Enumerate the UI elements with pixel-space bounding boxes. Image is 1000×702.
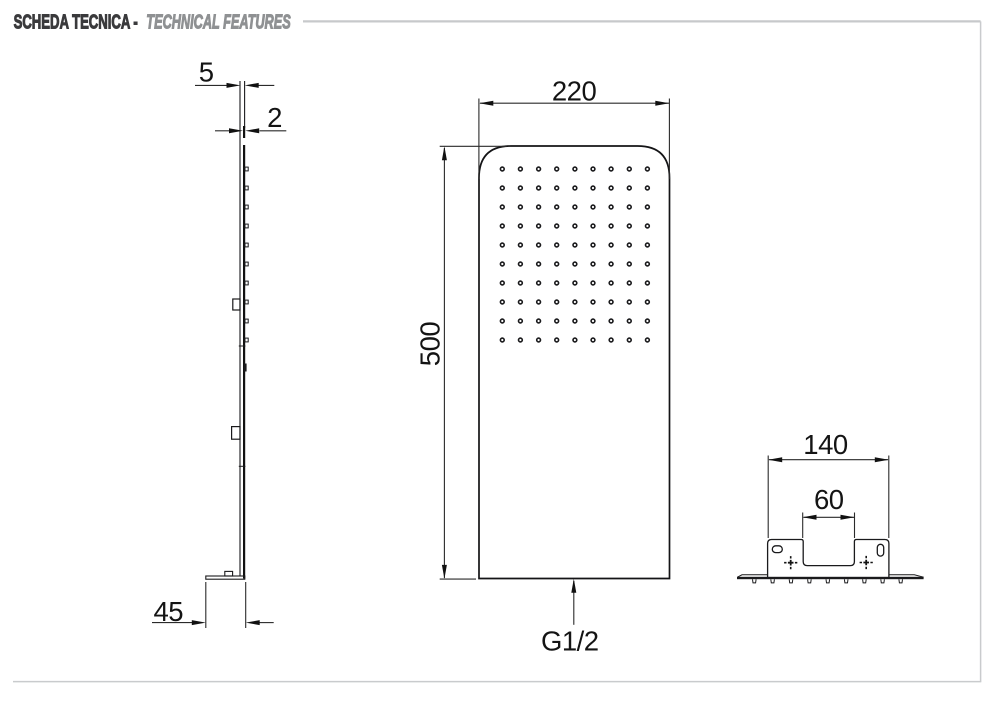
svg-text:2: 2 [267, 102, 282, 133]
svg-text:5: 5 [199, 56, 214, 87]
svg-text:140: 140 [803, 429, 848, 460]
svg-text:500: 500 [414, 322, 445, 367]
svg-text:SCHEDA TECNICA -: SCHEDA TECNICA - [14, 11, 138, 34]
svg-text:60: 60 [814, 484, 844, 515]
svg-text:G1/2: G1/2 [541, 626, 599, 657]
svg-text:TECHNICAL FEATURES: TECHNICAL FEATURES [146, 10, 291, 33]
svg-text:220: 220 [552, 75, 597, 106]
